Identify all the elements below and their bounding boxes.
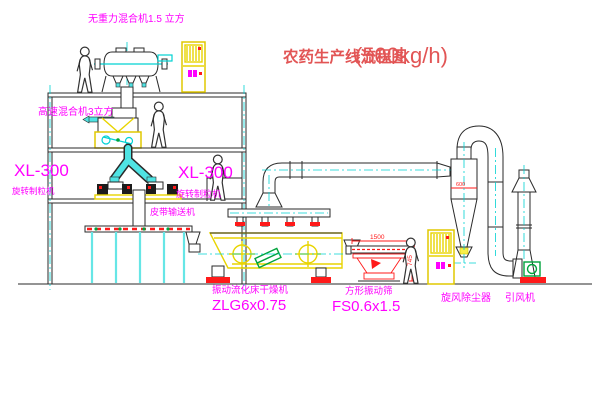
label-granulator-left-model: XL-300 <box>14 161 69 180</box>
control-cabinet-floor <box>428 230 454 284</box>
label-granulator-left-name: 旋转制粒机 <box>12 186 55 196</box>
chute-to-conveyor <box>133 190 145 226</box>
label-sieve-name: 方形振动筛 <box>345 285 393 297</box>
page-title-capacity: (500kg/h) <box>355 43 448 68</box>
label-gravity-mixer: 无重力混合机1.5 立方 <box>88 12 185 25</box>
label-sieve-model: FS0.6x1.5 <box>332 298 400 315</box>
cad-flow-diagram: 无重力混合机1.5 立方 农药生产线流程图 (500kg/h) 高速混合机3立方… <box>0 0 600 403</box>
label-cyclone: 旋风除尘器 <box>441 291 491 304</box>
fluid-bed-dryer <box>198 209 360 283</box>
label-dryer-name: 振动流化床干燥机 <box>212 284 289 296</box>
exhaust-duct <box>256 161 452 207</box>
induced-draft-fan <box>520 262 546 283</box>
rotary-granulator-left <box>95 177 137 199</box>
drawing-canvas: 无重力混合机1.5 立方 农药生产线流程图 (500kg/h) 高速混合机3立方… <box>0 0 600 403</box>
dim-sieve-length: 1500 <box>370 234 385 241</box>
mixer-outlets <box>113 76 149 87</box>
building-frame <box>18 42 592 290</box>
mixer-discharge-pipe <box>121 87 133 110</box>
dryer-vibration-motor <box>255 248 281 267</box>
label-granulator-right-model: XL-300 <box>178 163 233 182</box>
label-granulator-right-name: 旋转制粒机 <box>176 188 221 199</box>
worker-figure-roof <box>77 47 92 92</box>
y-split-feed-pipe <box>114 148 149 179</box>
dim-cyclone-diameter: 600 <box>456 182 465 188</box>
label-fan: 引风机 <box>505 291 535 304</box>
conveyor-legs <box>92 232 184 283</box>
worker-figure-floor2 <box>151 102 166 147</box>
dim-sieve-height: 745 <box>407 255 414 266</box>
control-cabinet-roof <box>182 42 205 92</box>
belt-conveyor <box>85 226 200 283</box>
gravity-free-mixer <box>94 48 172 110</box>
label-high-speed-mixer: 高速混合机3立方 <box>38 105 114 118</box>
label-dryer-model: ZLG6x0.75 <box>212 297 286 314</box>
cyclone-separator <box>451 142 477 271</box>
dryer-springs <box>235 217 320 226</box>
label-belt-conveyor: 皮带输送机 <box>150 206 195 217</box>
